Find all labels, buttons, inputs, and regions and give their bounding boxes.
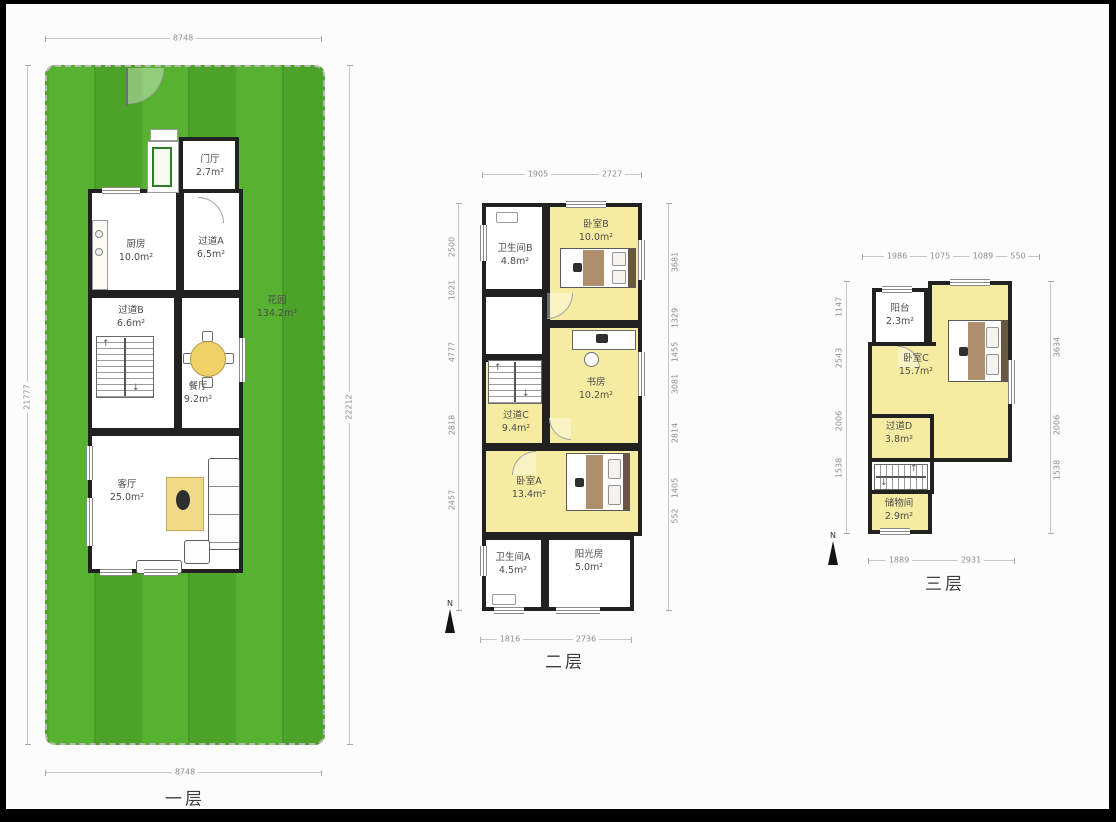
stairs-up-arrow: ↑ bbox=[910, 465, 918, 474]
room-label-bed-b: 卧室B 10.0m² bbox=[579, 219, 613, 245]
bathroom-sink bbox=[496, 212, 518, 223]
window bbox=[950, 279, 990, 286]
kitchen-stove-icon bbox=[95, 248, 103, 256]
dim-label: 1905 bbox=[525, 170, 551, 179]
window bbox=[556, 607, 600, 614]
kitchen-sink-icon bbox=[95, 230, 103, 238]
dim-label: 1089 bbox=[970, 252, 996, 261]
floor1-dim-top: 8748 bbox=[170, 34, 196, 43]
dim-label: 3634 bbox=[1053, 334, 1062, 360]
bed-headboard bbox=[1001, 321, 1007, 381]
floor3-dim-line-right bbox=[1050, 281, 1051, 534]
window bbox=[638, 240, 645, 280]
bed-headboard bbox=[628, 249, 635, 287]
window bbox=[480, 225, 487, 261]
dim-label: 550 bbox=[1007, 252, 1028, 261]
window bbox=[566, 201, 606, 208]
dim-label: 2006 bbox=[835, 408, 844, 434]
dining-table bbox=[190, 341, 226, 377]
dim-label: 1986 bbox=[884, 252, 910, 261]
north-arrow-icon bbox=[828, 541, 838, 565]
dim-label: 1889 bbox=[886, 556, 912, 565]
room-label-sunroom: 阳光房 5.0m² bbox=[575, 549, 604, 575]
dim-label: 4777 bbox=[448, 339, 457, 365]
stairs-up-arrow: ↑ bbox=[494, 364, 502, 373]
room-label-bed-c: 卧室C 15.7m² bbox=[899, 353, 933, 379]
dim-label: 3081 bbox=[671, 371, 680, 397]
dim-label: 1538 bbox=[1053, 457, 1062, 483]
bed-pillow bbox=[608, 459, 621, 479]
room-label-dining: 餐厅 9.2m² bbox=[184, 381, 212, 407]
entry-step bbox=[150, 129, 178, 141]
floor1-dim-bottom: 8748 bbox=[172, 768, 198, 777]
stairs-down-arrow: ↓ bbox=[132, 384, 140, 393]
dim-label: 2727 bbox=[599, 170, 625, 179]
dim-label: 3681 bbox=[671, 249, 680, 275]
bed-blanket bbox=[586, 455, 603, 509]
dim-label: 1147 bbox=[835, 294, 844, 320]
bed-bag bbox=[573, 263, 582, 272]
room-label-kitchen: 厨房 10.0m² bbox=[119, 239, 153, 265]
stairs-down-arrow: ↓ bbox=[880, 479, 888, 488]
table-bowl bbox=[176, 490, 190, 510]
floor1-dim-left: 21777 bbox=[23, 381, 32, 412]
dim-label: 552 bbox=[671, 505, 680, 526]
ottoman bbox=[184, 540, 210, 564]
north-arrow-floor3: N bbox=[826, 532, 840, 565]
room-label-garden: 花园 134.2m² bbox=[257, 295, 297, 321]
room-label-hall-a: 过道A 6.5m² bbox=[197, 236, 225, 262]
window bbox=[638, 352, 645, 396]
bed-pillow bbox=[608, 485, 621, 505]
north-letter: N bbox=[443, 600, 457, 609]
dim-label: 2818 bbox=[448, 412, 457, 438]
dim-label: 1329 bbox=[671, 305, 680, 331]
floor1-dim-right: 22212 bbox=[345, 391, 354, 422]
bed-headboard bbox=[623, 454, 629, 510]
bathroom-sink bbox=[492, 594, 516, 605]
window bbox=[882, 286, 912, 293]
bed-b bbox=[560, 248, 636, 288]
bed-pillow bbox=[986, 354, 999, 375]
bed-blanket bbox=[583, 250, 604, 286]
floor2-label: 二层 bbox=[545, 648, 585, 673]
dim-label: 1455 bbox=[671, 339, 680, 365]
dim-label: 2543 bbox=[835, 345, 844, 371]
room-label-bed-a: 卧室A 13.4m² bbox=[512, 476, 546, 502]
stairs-divider bbox=[124, 338, 126, 396]
room-label-balcony: 阳台 2.3m² bbox=[886, 303, 914, 329]
garden-door bbox=[152, 147, 172, 187]
window bbox=[239, 338, 246, 382]
dim-label: 2006 bbox=[1053, 412, 1062, 438]
room-label-entry: 门厅 2.7m² bbox=[196, 154, 224, 180]
window bbox=[494, 607, 524, 614]
window bbox=[100, 569, 132, 576]
dim-label: 1075 bbox=[927, 252, 953, 261]
room-label-living: 客厅 25.0m² bbox=[110, 479, 144, 505]
bed-bag bbox=[959, 347, 968, 356]
north-arrow-icon bbox=[445, 609, 455, 633]
bed-a bbox=[566, 453, 630, 511]
north-arrow-floor2: N bbox=[443, 600, 457, 633]
dim-label: 1816 bbox=[497, 635, 523, 644]
bed-blanket bbox=[968, 322, 985, 380]
dim-label: 1405 bbox=[671, 475, 680, 501]
dim-label: 2814 bbox=[671, 420, 680, 446]
room-label-hall-d: 过道D 3.8m² bbox=[885, 421, 913, 447]
laptop bbox=[596, 334, 608, 343]
window bbox=[480, 546, 487, 576]
room-label-bath-b: 卫生间B 4.8m² bbox=[497, 243, 532, 269]
window bbox=[1008, 360, 1015, 404]
room-label-study: 书房 10.2m² bbox=[579, 377, 613, 403]
window bbox=[102, 187, 140, 194]
floor2-dim-line-left bbox=[458, 203, 459, 611]
stairs-down-arrow: ↓ bbox=[522, 390, 530, 399]
floor3-label: 三层 bbox=[925, 570, 965, 595]
floor2-dim-line-right bbox=[668, 203, 669, 611]
sofa bbox=[208, 458, 240, 550]
dim-label: 2500 bbox=[448, 234, 457, 260]
floorplan-canvas: 8748 8748 21777 22212 一层 花园 134.2m² ↑ ↓ bbox=[0, 0, 1116, 822]
dim-label: 2931 bbox=[958, 556, 984, 565]
room-label-hall-c: 过道C 9.4m² bbox=[502, 410, 530, 436]
north-letter: N bbox=[826, 532, 840, 541]
window bbox=[144, 569, 178, 576]
room-corridor-b bbox=[482, 293, 546, 358]
bed-pillow bbox=[612, 270, 626, 284]
window bbox=[880, 528, 910, 535]
dim-label: 1538 bbox=[835, 455, 844, 481]
room-label-hall-b: 过道B 6.6m² bbox=[117, 305, 145, 331]
dim-label: 2457 bbox=[448, 487, 457, 513]
window bbox=[86, 446, 93, 480]
floor3-dim-line-left bbox=[846, 281, 847, 534]
floor1-label: 一层 bbox=[165, 785, 205, 810]
bed-c bbox=[948, 320, 1008, 382]
bed-bag bbox=[575, 478, 584, 487]
room-label-storage: 储物间 2.9m² bbox=[885, 498, 914, 524]
dim-label: 2736 bbox=[573, 635, 599, 644]
desk-chair bbox=[584, 352, 599, 367]
room-label-bath-a: 卫生间A 4.5m² bbox=[496, 552, 531, 578]
bed-pillow bbox=[986, 327, 999, 348]
dim-label: 1021 bbox=[448, 277, 457, 303]
stairs-divider bbox=[514, 362, 516, 402]
window bbox=[86, 498, 93, 546]
bed-pillow bbox=[612, 252, 626, 266]
stairs-up-arrow: ↑ bbox=[102, 340, 110, 349]
